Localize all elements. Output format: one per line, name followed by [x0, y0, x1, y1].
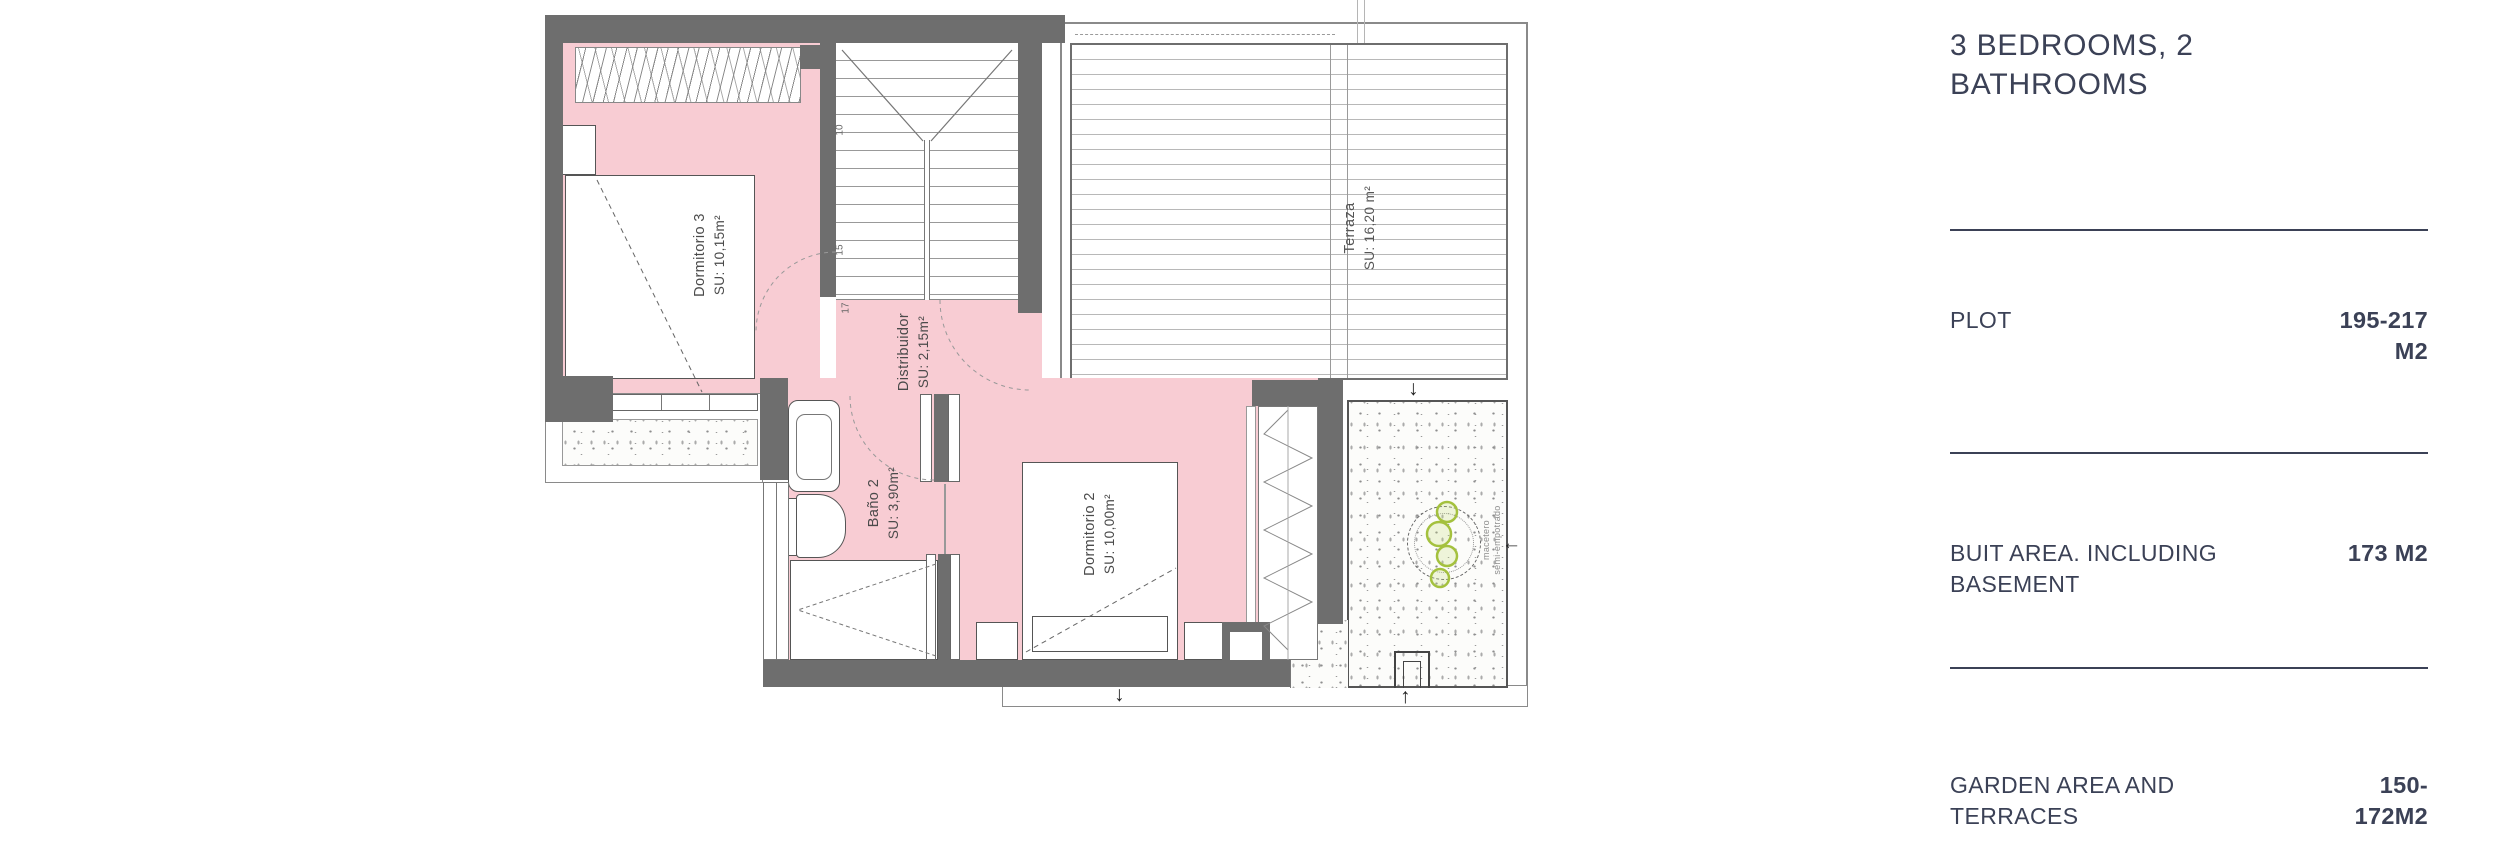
- wall-right: [1318, 380, 1343, 624]
- door-frame: [920, 394, 932, 482]
- wall-door-jamb: [934, 394, 948, 482]
- room-label-bano2: Baño 2 SU: 3,90m²: [865, 467, 903, 539]
- door-frame: [948, 394, 960, 482]
- room-name: Dormitorio 2: [1081, 492, 1100, 576]
- door-leaf-line: [944, 484, 946, 554]
- room-label-dormitorio3: Dormitorio 3 SU: 10,15m²: [685, 203, 735, 307]
- staircase-center-rail: [924, 140, 930, 300]
- floor-plan-page: { "panel": { "title": "3 BEDROOMS, 2 BAT…: [0, 0, 2500, 856]
- nightstand: [562, 125, 596, 175]
- page-title: 3 BEDROOMS, 2 BATHROOMS: [1950, 26, 2290, 104]
- window-dormitorio3: [612, 394, 758, 411]
- shower-tray: [790, 560, 938, 660]
- wall-bottom: [763, 660, 1290, 687]
- arrow-down-icon: ↓: [1114, 684, 1125, 705]
- room-name: Dormitorio 3: [691, 213, 710, 297]
- wall-left: [545, 43, 563, 383]
- stair-number: 10: [835, 124, 846, 135]
- window-mullion: [709, 395, 710, 410]
- spec-label: PLOT: [1950, 305, 2012, 336]
- sink-basin: [796, 414, 832, 480]
- spec-value: 195-217 M2: [2316, 305, 2428, 367]
- room-area: SU: 2,15m²: [914, 316, 933, 388]
- wall-corner-sw: [545, 376, 613, 422]
- room-area: SU: 10,00m²: [1100, 494, 1119, 574]
- balcony-gravel: [562, 419, 758, 466]
- window-dormitorio2: [1246, 406, 1256, 658]
- stair-number: 15: [835, 244, 846, 255]
- room-name: Baño 2: [865, 479, 884, 527]
- toilet-bowl: [796, 494, 846, 558]
- terrace-joint-line: [1330, 45, 1331, 378]
- room-area: SU: 10,15m²: [710, 215, 729, 295]
- door-frame: [950, 554, 960, 660]
- wall-stair-divider: [820, 43, 836, 297]
- arrow-left-icon: ←: [1502, 534, 1521, 553]
- wall-closet-notch: [800, 45, 820, 69]
- wall-bath-left: [760, 378, 788, 480]
- planter-label-line: macetero: [1481, 520, 1492, 560]
- roof-stub-line: [1364, 0, 1365, 43]
- room-label-dormitorio2: Dormitorio 2 SU: 10,00m²: [1081, 492, 1119, 576]
- arrow-down-icon: ↓: [1408, 378, 1419, 399]
- wall-door-jamb: [938, 554, 950, 660]
- room-name: Distribuidor: [895, 313, 914, 391]
- bottom-walkway-band: [1002, 685, 1528, 707]
- window-mullion: [776, 483, 777, 659]
- nightstand: [976, 622, 1018, 660]
- window-mullion: [661, 395, 662, 410]
- room-area: SU: 3,90m²: [884, 467, 903, 539]
- spec-value: 173 M2: [2348, 538, 2428, 569]
- door-frame: [926, 554, 936, 660]
- room-label-terraza: Terraza SU: 16,20 m²: [1341, 186, 1379, 270]
- info-panel: 3 BEDROOMS, 2 BATHROOMS PLOT 195-217 M2 …: [1950, 0, 2428, 856]
- stair-number: 17: [841, 302, 852, 313]
- pillow-dormitorio2: [1032, 616, 1168, 652]
- divider: [1950, 229, 2428, 231]
- garden-gate-inner: [1403, 661, 1421, 688]
- room-area: SU: 16,20 m²: [1360, 186, 1379, 270]
- window-shower: [763, 482, 789, 660]
- spec-label: GARDEN AREA AND TERRACES: [1950, 770, 2307, 832]
- planter-label: macetero semi-empotrado: [1481, 505, 1503, 574]
- wall-step-se-inner: [1230, 632, 1262, 660]
- spec-label: BUIT AREA. INCLUDING BASEMENT: [1950, 538, 2260, 600]
- room-label-distribuidor: Distribuidor SU: 2,15m²: [895, 313, 933, 391]
- divider: [1950, 667, 2428, 669]
- spec-row-built-area: BUIT AREA. INCLUDING BASEMENT 173 M2: [1950, 538, 2428, 600]
- wall-top: [545, 15, 1065, 43]
- wall-stair-right: [1018, 43, 1042, 313]
- arrow-up-icon: ↑: [1400, 686, 1411, 707]
- spec-value: 150-172M2: [2307, 770, 2428, 832]
- planter-ring-inner: [1414, 513, 1474, 573]
- spec-row-plot: PLOT 195-217 M2: [1950, 305, 2428, 367]
- closet-dormitorio3: [575, 47, 801, 103]
- room-name: Terraza: [1341, 202, 1360, 253]
- roof-stub-line: [1357, 0, 1358, 43]
- divider: [1950, 452, 2428, 454]
- nightstand: [1184, 622, 1226, 660]
- pergola-dashed-line: [1075, 34, 1335, 35]
- spec-row-garden: GARDEN AREA AND TERRACES 150-172M2: [1950, 770, 2428, 832]
- terrace-deck: [1070, 43, 1508, 380]
- floor-plan: Dormitorio 3 SU: 10,15m² Distribuidor SU…: [0, 0, 1700, 856]
